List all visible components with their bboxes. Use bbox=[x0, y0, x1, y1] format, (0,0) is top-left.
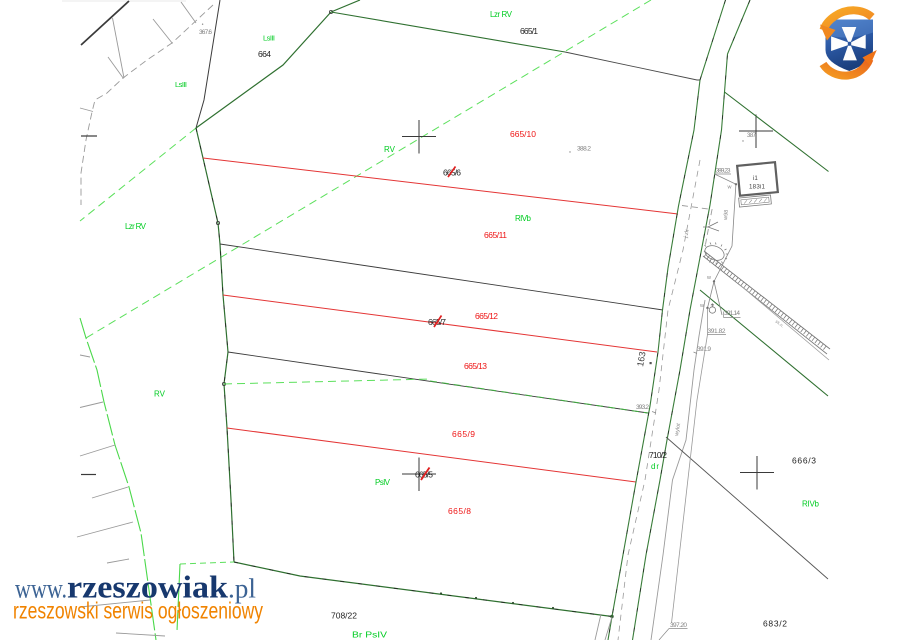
svg-text:665/10: 665/10 bbox=[510, 129, 536, 139]
svg-text:391.9: 391.9 bbox=[697, 346, 711, 353]
svg-text:397.20: 397.20 bbox=[670, 622, 687, 629]
svg-text:665/8: 665/8 bbox=[448, 506, 471, 516]
svg-text:665/11: 665/11 bbox=[484, 230, 507, 240]
svg-text:rzeszowski serwis ogłoszeniowy: rzeszowski serwis ogłoszeniowy bbox=[13, 598, 263, 624]
svg-text:RV: RV bbox=[154, 390, 166, 399]
svg-text:387: 387 bbox=[747, 133, 757, 139]
svg-text:Br PsIV: Br PsIV bbox=[352, 631, 388, 640]
svg-text:391.14: 391.14 bbox=[724, 310, 740, 317]
svg-text:PsIV: PsIV bbox=[375, 478, 391, 487]
svg-text:665/12: 665/12 bbox=[475, 311, 498, 321]
svg-text:367.6: 367.6 bbox=[199, 29, 212, 36]
svg-text:RIVb: RIVb bbox=[515, 214, 532, 223]
svg-text:393.2: 393.2 bbox=[636, 404, 649, 411]
svg-text:389.23: 389.23 bbox=[716, 168, 731, 175]
svg-text:dr: dr bbox=[651, 462, 659, 471]
svg-text:664: 664 bbox=[258, 49, 271, 59]
svg-text:w: w bbox=[727, 185, 732, 191]
svg-text:183i1: 183i1 bbox=[749, 184, 766, 191]
svg-text:710/2: 710/2 bbox=[649, 450, 667, 460]
svg-text:665/9: 665/9 bbox=[452, 429, 475, 439]
svg-text:RIVb: RIVb bbox=[802, 500, 820, 509]
svg-text:LsIII: LsIII bbox=[175, 80, 187, 89]
svg-text:i1: i1 bbox=[753, 175, 758, 182]
svg-text:w: w bbox=[699, 303, 704, 309]
svg-text:w: w bbox=[706, 275, 711, 281]
svg-text:665/13: 665/13 bbox=[464, 361, 487, 371]
svg-text:RV: RV bbox=[384, 145, 396, 154]
svg-text:Lzr RV: Lzr RV bbox=[490, 10, 513, 19]
svg-text:666/3: 666/3 bbox=[792, 456, 816, 466]
svg-text:683/2: 683/2 bbox=[763, 619, 787, 629]
svg-text:LsIII: LsIII bbox=[263, 34, 275, 43]
svg-text:w98: w98 bbox=[723, 210, 730, 222]
svg-text:388.2: 388.2 bbox=[577, 146, 591, 153]
svg-text:391.82: 391.82 bbox=[708, 328, 726, 335]
svg-text:Lzr RV: Lzr RV bbox=[125, 222, 147, 231]
svg-text:708/22: 708/22 bbox=[331, 611, 357, 621]
svg-text:665/1: 665/1 bbox=[520, 26, 538, 36]
